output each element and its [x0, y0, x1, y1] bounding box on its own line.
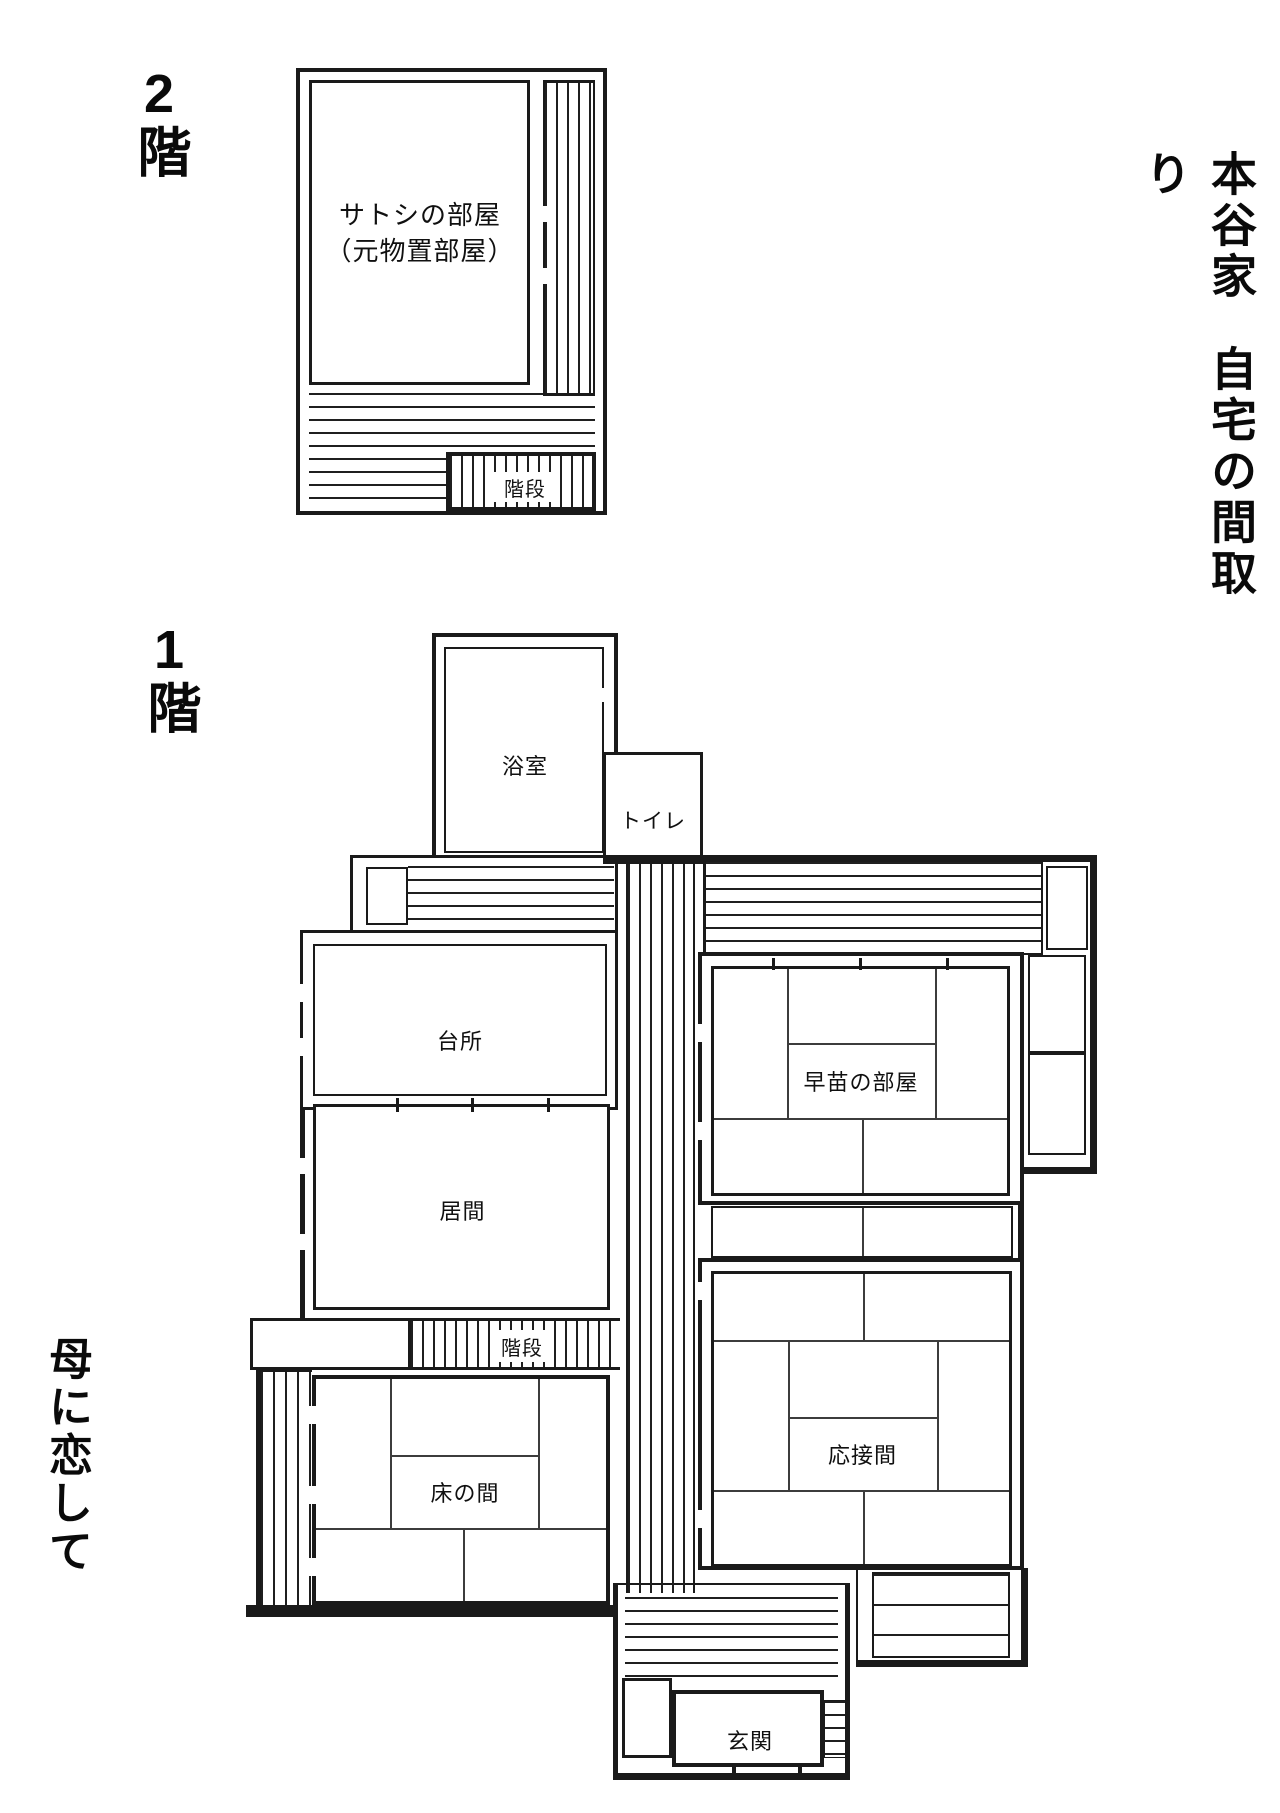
room-sanae-label: 早苗の部屋: [777, 1045, 945, 1116]
door-gap: [695, 1122, 705, 1140]
floor2-stairs-label: 階段: [494, 472, 556, 502]
door-gap: [297, 1038, 307, 1056]
tatami-line: [937, 1340, 939, 1490]
wall: [1022, 1167, 1097, 1174]
tatami-line: [714, 1490, 1009, 1492]
door-tick: [396, 1098, 399, 1112]
wall: [300, 1107, 305, 1320]
wall: [1018, 1205, 1024, 1260]
door-gap: [309, 1406, 318, 1424]
central-corridor-stripes: [626, 862, 695, 1593]
room-satoshi-label: サトシの部屋 （元物置部屋）: [320, 188, 520, 278]
floor1-stairs-label: 階段: [490, 1330, 554, 1362]
room-bath-label: 浴室: [460, 745, 590, 785]
closet-topleft: [366, 867, 408, 925]
door-tick: [798, 1766, 802, 1778]
floor2-balcony-stripes: [543, 80, 595, 396]
tatami-line: [862, 1208, 864, 1256]
room-tokonoma-label: 床の間: [390, 1457, 540, 1526]
door-tick: [732, 1766, 736, 1778]
room-reception-label: 応接間: [788, 1419, 937, 1488]
tatami-line: [714, 1340, 1009, 1342]
room-entrance-label: 玄関: [700, 1722, 800, 1758]
door-gap: [309, 1558, 318, 1576]
closet-topright: [1046, 866, 1088, 950]
entrance-side-stripes: [824, 1700, 846, 1758]
door-gap: [539, 268, 548, 284]
door-gap: [309, 1486, 318, 1504]
tatami-line: [862, 1120, 864, 1193]
tatami-line: [863, 1492, 865, 1564]
tatami-line: [863, 1274, 865, 1340]
bottom-left-title: 母に恋して: [34, 1336, 98, 1596]
tatami-line: [463, 1530, 465, 1601]
room-toilet-label: トイレ: [613, 800, 693, 840]
room-sanae: 早苗の部屋: [711, 966, 1010, 1196]
closet-right-top: [1028, 955, 1086, 1053]
door-tick: [547, 1098, 550, 1112]
tatami-line: [714, 1118, 1007, 1120]
wall: [605, 855, 1097, 862]
door-tick: [946, 958, 949, 970]
door-gap: [539, 206, 548, 222]
tatami-line: [316, 1528, 606, 1530]
door-tick: [859, 958, 862, 970]
stairs-landing: [250, 1318, 411, 1370]
room-kitchen-label: 台所: [400, 1020, 520, 1060]
wall: [1090, 855, 1097, 1173]
closet-right-bottom: [1028, 1053, 1086, 1155]
door-gap: [297, 984, 307, 1002]
engawa-bottomright-stripes: [872, 1572, 1010, 1658]
entrance-hall-stripes: [625, 1597, 838, 1679]
corridor-topleft-stripes: [408, 866, 614, 926]
floor-plan-page: 本谷家自宅の間取り 母に恋して 2階 1階 サトシの部屋 （元物置部屋） 階段 …: [0, 0, 1280, 1813]
room-tokonoma: 床の間: [312, 1375, 610, 1605]
door-tick: [471, 1098, 474, 1112]
corridor-topright-stripes: [703, 862, 1043, 955]
door-gap: [695, 1282, 705, 1300]
main-title: 本谷家自宅の間取り: [1132, 150, 1264, 630]
door-tick: [772, 958, 775, 970]
floor2-label: 2階: [132, 64, 186, 178]
tokonoma-side-stripes: [256, 1370, 312, 1610]
door-gap: [695, 1024, 705, 1042]
floor1-label: 1階: [142, 620, 196, 734]
door-gap: [297, 1234, 307, 1250]
wall: [246, 1605, 615, 1617]
entrance-closet: [622, 1678, 672, 1758]
room-reception: 応接間: [711, 1271, 1012, 1567]
room-living-label: 居間: [405, 1190, 520, 1230]
door-gap: [695, 1510, 705, 1528]
main-title-family: 本谷家: [1204, 150, 1258, 303]
door-gap: [297, 1158, 307, 1174]
closet-strip: [711, 1206, 1013, 1258]
door-gap: [600, 688, 610, 702]
